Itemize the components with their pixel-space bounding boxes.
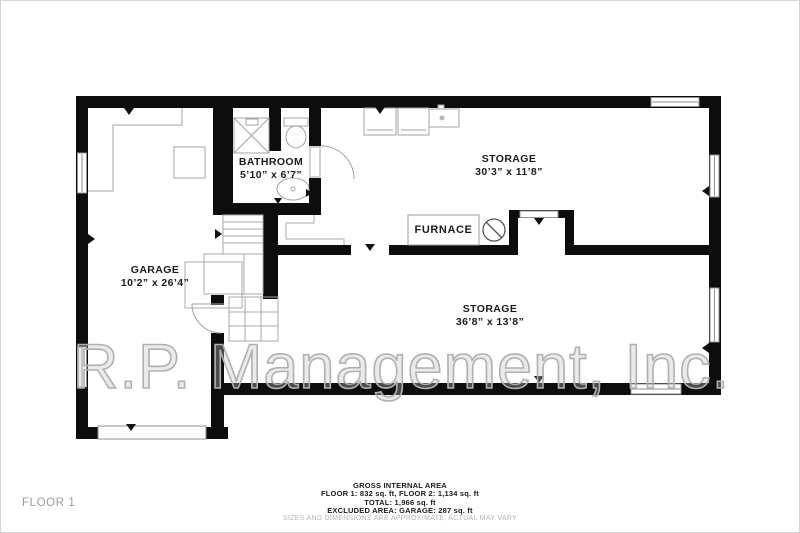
- marker-right-wall-upper: [702, 186, 709, 196]
- bath-sink-drain: [291, 187, 295, 191]
- wall-garage-bathroom-divider: [213, 96, 233, 214]
- garage-counter-line: [88, 108, 182, 191]
- wall-divider-b: [389, 245, 509, 255]
- wall-bathroom-bottom: [213, 203, 321, 215]
- utility-sink-drain: [440, 116, 445, 121]
- bathroom-door-arc: [321, 146, 354, 179]
- stairs-winder-grid: [229, 297, 278, 341]
- room-label-storage-upper: STORAGE 30’3” x 11’8”: [429, 153, 589, 179]
- room-dims: 10’2” x 26’4”: [95, 277, 215, 290]
- room-dims: 5’10” x 6’7”: [225, 169, 317, 182]
- marker-divider-doorway: [365, 244, 375, 251]
- room-label-garage: GARAGE 10’2” x 26’4”: [95, 264, 215, 290]
- wall-top: [76, 96, 721, 108]
- marker-stair-arrow: [215, 229, 222, 239]
- room-name: STORAGE: [410, 303, 570, 316]
- garage-symbols: [88, 108, 205, 191]
- wall-divider-a: [263, 245, 351, 255]
- wall-shower-divider: [269, 107, 281, 151]
- toilet-bowl: [286, 126, 306, 148]
- room-dims: 30’3” x 11’8”: [429, 166, 589, 179]
- room-label-bathroom: BATHROOM 5’10” x 6’7”: [225, 156, 317, 182]
- stair-half-wall-line: [286, 215, 344, 245]
- shower-head-box: [246, 119, 258, 125]
- wall-bathroom-right-upper: [309, 96, 321, 146]
- garage-equipment-box: [174, 147, 205, 178]
- room-name: BATHROOM: [225, 156, 317, 169]
- marker-top-garage: [124, 108, 134, 115]
- room-name: STORAGE: [429, 153, 589, 166]
- window-notch: [520, 211, 558, 218]
- wall-left: [76, 96, 88, 439]
- toilet-tank: [284, 118, 308, 126]
- marker-left-wall: [88, 234, 95, 244]
- room-name: GARAGE: [95, 264, 215, 277]
- floorplan-page: GARAGE 10’2” x 26’4” BATHROOM 5’10” x 6’…: [0, 0, 800, 533]
- utility-sink-faucet: [438, 105, 444, 109]
- wall-garage-right-lower: [211, 333, 224, 439]
- disclaimer: SIZES AND DIMENSIONS ARE APPROXIMATE, AC…: [1, 515, 799, 524]
- room-dims: 36’8” x 13’8”: [410, 316, 570, 329]
- excluded-area: EXCLUDED AREA: GARAGE: 287 sq. ft: [1, 507, 799, 515]
- garage-door: [98, 426, 206, 439]
- stairs-upper-run: [223, 215, 263, 254]
- marker-right-wall-lower: [702, 343, 709, 353]
- wall-divider-c: [565, 245, 721, 255]
- room-label-storage-lower: STORAGE 36’8” x 13’8”: [410, 303, 570, 329]
- marker-notch-window: [534, 218, 544, 225]
- area-summary: GROSS INTERNAL AREA FLOOR 1: 832 sq. ft,…: [1, 482, 799, 524]
- dryer-icon: [398, 108, 429, 135]
- marker-storage-bottom: [534, 376, 544, 383]
- furnace-label: FURNACE: [408, 215, 479, 245]
- wall-stair-right: [263, 215, 278, 299]
